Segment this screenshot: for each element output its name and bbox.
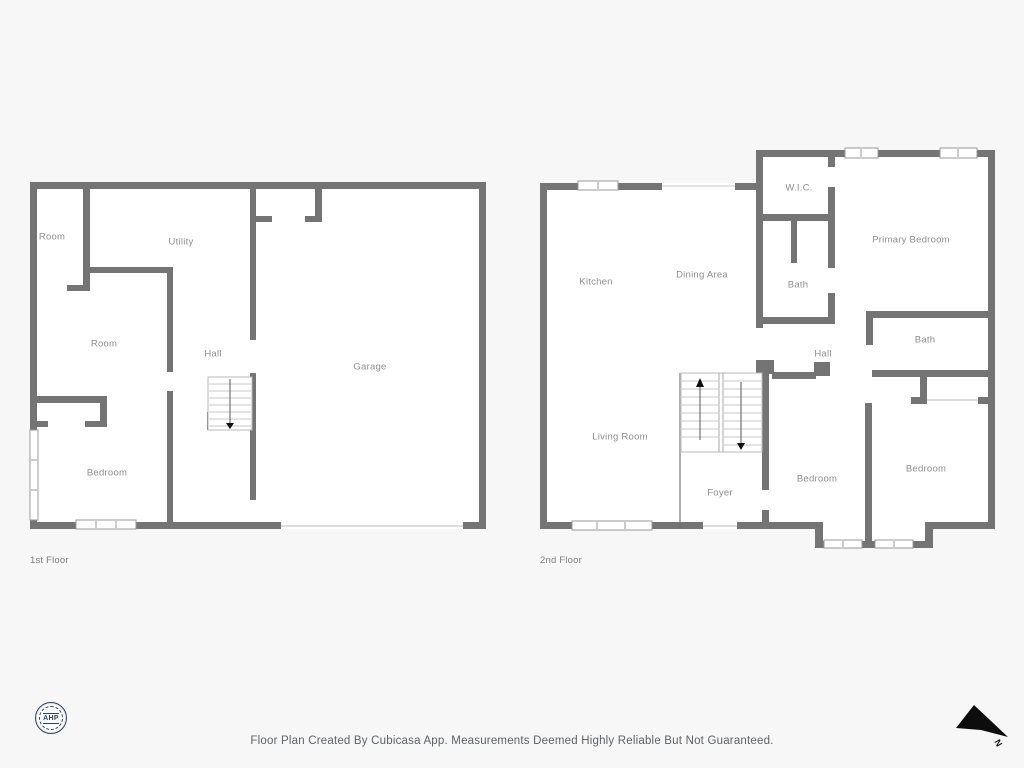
room-label-room-1f-b: Room [91, 339, 117, 350]
room-label-living-room: Living Room [592, 432, 648, 443]
footer-disclaimer: Floor Plan Created By Cubicasa App. Meas… [0, 735, 1024, 747]
room-label-garage: Garage [353, 362, 386, 373]
ahp-logo-text: AHP [43, 713, 59, 724]
room-label-room-1f-a: Room [39, 232, 65, 243]
ahp-logo-inner-ring: AHP [39, 706, 63, 730]
north-arrow-icon [956, 705, 1008, 737]
bedroom-window-1 [824, 540, 862, 548]
second-floor-plan [540, 148, 995, 548]
bedroom-window [76, 520, 136, 529]
first-floor-staircase [208, 377, 252, 430]
primary-bedroom-window-1 [845, 148, 878, 158]
room-label-primary-bedroom: Primary Bedroom [872, 235, 950, 246]
room-label-wic: W.I.C. [785, 183, 812, 194]
dining-slider-opening [662, 185, 735, 187]
garage-door-opening [281, 525, 463, 527]
room-label-utility: Utility [169, 237, 194, 248]
room-label-dining-area: Dining Area [676, 270, 728, 281]
ahp-logo-badge: AHP [35, 702, 67, 734]
second-floor-title: 2nd Floor [540, 555, 582, 566]
room-label-bedroom-1f: Bedroom [87, 468, 127, 479]
first-floor-title: 1st Floor [30, 555, 69, 566]
second-floor-staircase [681, 373, 762, 452]
room-label-hall-2f: Hall [814, 349, 831, 360]
entry-door-opening [703, 525, 737, 527]
room-label-bedroom-right: Bedroom [906, 464, 946, 475]
room-label-hall-1f: Hall [204, 349, 221, 360]
closet-door-opening [927, 399, 978, 401]
kitchen-window [578, 181, 618, 190]
bedroom-side-window [30, 430, 38, 520]
room-label-bath-upper: Bath [788, 280, 809, 291]
bedroom-window-2 [875, 540, 913, 548]
room-label-foyer: Foyer [707, 488, 733, 499]
floor-plan-page: Room Utility Room Hall Garage Bedroom Ki… [0, 0, 1024, 768]
living-room-window [572, 521, 652, 530]
primary-bedroom-window-2 [940, 148, 977, 158]
room-label-bath-right: Bath [915, 335, 936, 346]
room-label-bedroom-left: Bedroom [797, 474, 837, 485]
room-label-kitchen: Kitchen [579, 277, 612, 288]
floor-plan-drawing [0, 0, 1024, 768]
